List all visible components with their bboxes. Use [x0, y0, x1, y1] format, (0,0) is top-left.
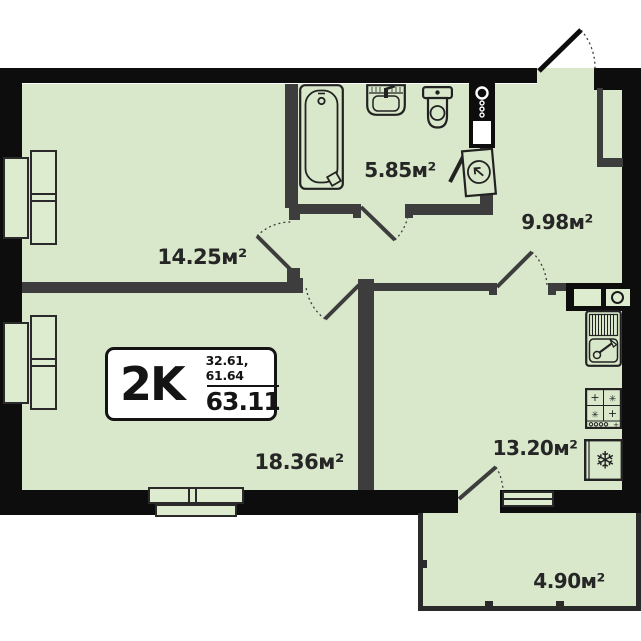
bathroom-area-label: 5.85м² [364, 158, 435, 182]
kitchen-door-leaf [497, 252, 532, 287]
apartment-type: 2K [120, 361, 184, 407]
apartment-type-badge: 2K 32.61, 61.64 63.11 [105, 347, 277, 421]
entrance-door-leaf [539, 30, 581, 71]
room1-area-label: 14.25м² [157, 245, 246, 269]
bathroom-door-leaf [361, 207, 395, 240]
floor-plan: + ✳ ✳ + + ❄ 2K [0, 0, 641, 641]
room1-door-leaf [257, 236, 291, 270]
entrance-door-arc [581, 30, 595, 70]
room2-area-label: 18.36м² [254, 450, 343, 474]
balcony-area-label: 4.90м² [533, 569, 604, 593]
bathroom-door-arc [395, 207, 409, 240]
room2-door-arc [306, 287, 325, 319]
doors-layer [0, 0, 641, 641]
badge-areas-partial: 32.61, 61.64 [206, 353, 280, 383]
kitchen-area-label: 13.20м² [493, 436, 578, 460]
hallway-area-label: 9.98м² [521, 210, 592, 234]
room1-door-arc [257, 222, 293, 236]
kitchen-door-arc [532, 252, 547, 287]
room2-door-leaf [325, 285, 359, 319]
balcony-door-leaf [459, 467, 496, 499]
balcony-door-arc [496, 467, 503, 491]
badge-area-total: 63.11 [206, 388, 280, 416]
